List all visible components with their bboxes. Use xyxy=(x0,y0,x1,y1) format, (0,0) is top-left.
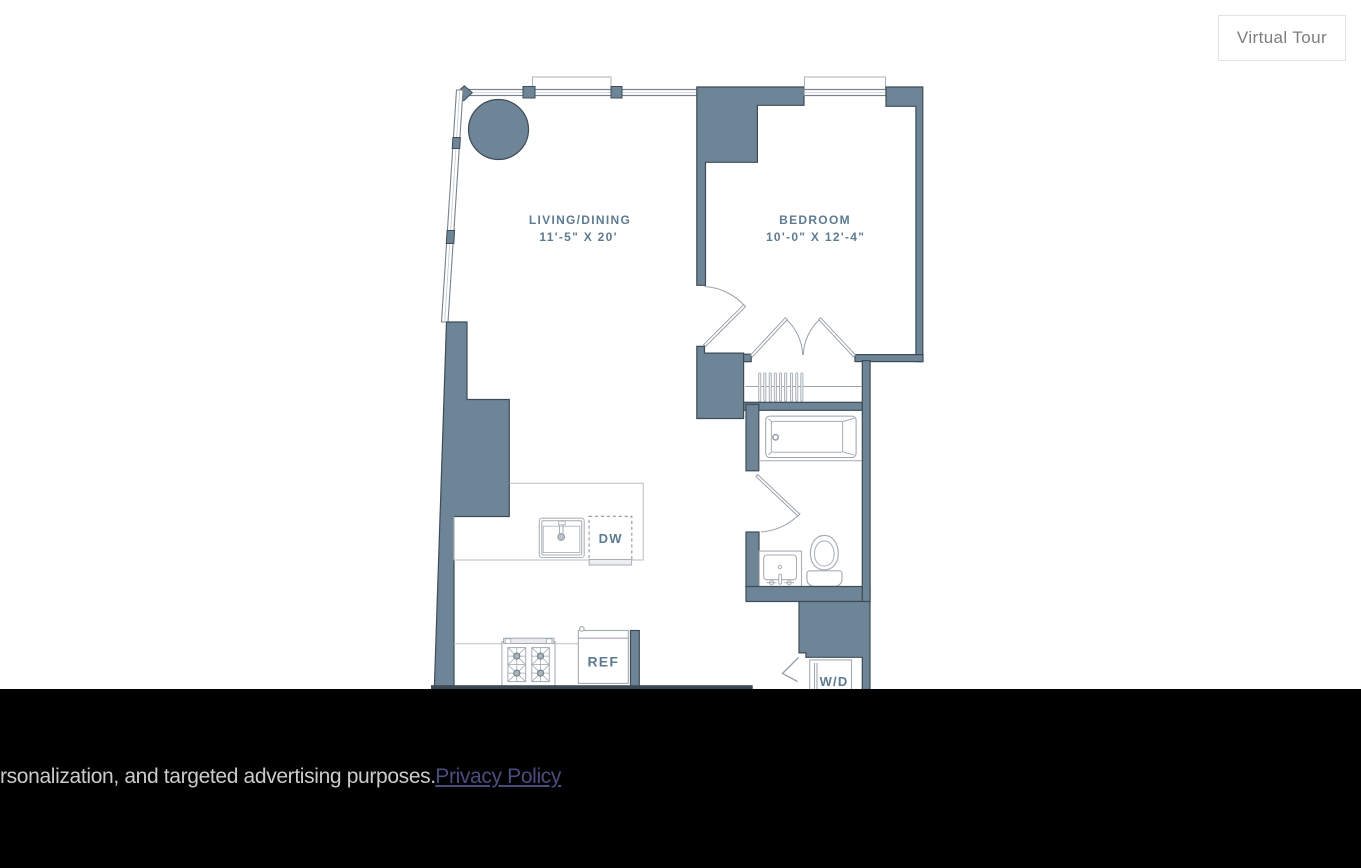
svg-text:10'-0" X 12'-4": 10'-0" X 12'-4" xyxy=(766,230,865,244)
svg-text:11'-5" X 20': 11'-5" X 20' xyxy=(539,230,617,244)
svg-text:REF: REF xyxy=(587,654,619,670)
svg-text:W/D: W/D xyxy=(820,674,849,689)
svg-text:DW: DW xyxy=(599,531,623,546)
svg-text:BEDROOM: BEDROOM xyxy=(779,213,851,227)
svg-text:LIVING/DINING: LIVING/DINING xyxy=(529,213,631,227)
